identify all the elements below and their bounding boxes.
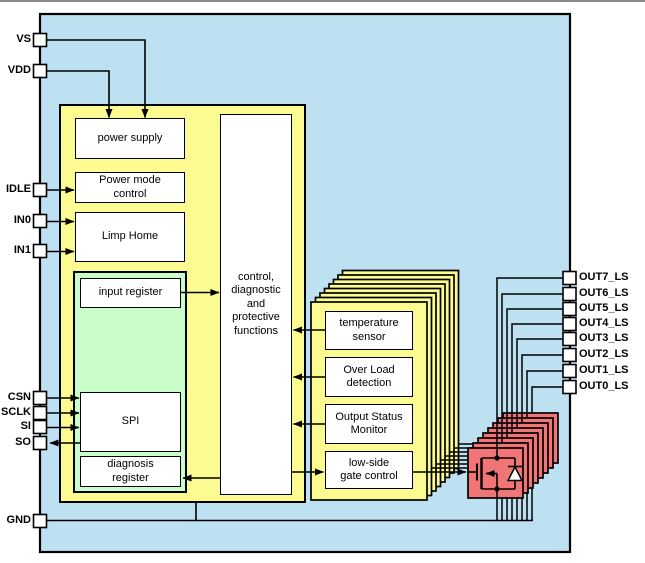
pin-out0_ls — [563, 381, 576, 394]
pin-label-out0_ls: OUT0_LS — [579, 379, 629, 394]
pin-label-csn: CSN — [0, 390, 31, 405]
pin-si — [34, 421, 47, 434]
drain-junction-dot — [494, 455, 499, 460]
power-mode-control-block: Power mode control — [75, 172, 185, 203]
source-junction-dot — [494, 486, 499, 491]
output-status-monitor-block: Output Status Monitor — [325, 404, 413, 444]
pin-label-out2_ls: OUT2_LS — [579, 347, 629, 362]
pin-out2_ls — [563, 349, 576, 362]
pin-out6_ls — [563, 288, 576, 301]
ic-block-diagram: power supply Power mode control Limp Hom… — [0, 0, 645, 563]
control-diagnostic-block: control, diagnostic and protective funct… — [220, 114, 292, 495]
pin-label-out7_ls: OUT7_LS — [579, 270, 629, 285]
pin-label-vdd: VDD — [0, 63, 31, 78]
pin-in1 — [34, 245, 47, 258]
pin-label-out5_ls: OUT5_LS — [579, 301, 629, 316]
pin-label-out4_ls: OUT4_LS — [579, 316, 629, 331]
pin-in0 — [34, 215, 47, 228]
pin-out4_ls — [563, 318, 576, 331]
spi-block: SPI — [80, 392, 181, 452]
pin-label-out3_ls: OUT3_LS — [579, 331, 629, 346]
lowside-gate-control-block: low-side gate control — [325, 451, 413, 489]
temperature-sensor-block: temperature sensor — [325, 311, 413, 350]
power-supply-block: power supply — [75, 118, 185, 159]
diagnosis-register-block: diagnosis register — [80, 456, 181, 487]
pin-csn — [34, 392, 47, 405]
pin-label-gnd: GND — [0, 513, 31, 528]
pin-sclk — [34, 407, 47, 420]
pin-out3_ls — [563, 333, 576, 346]
pin-so — [34, 437, 47, 450]
pin-label-out1_ls: OUT1_LS — [579, 363, 629, 378]
pin-label-si: SI — [0, 419, 31, 434]
pin-out1_ls — [563, 365, 576, 378]
pin-label-vs: VS — [0, 32, 31, 47]
pin-out7_ls — [563, 272, 576, 285]
pin-vs — [34, 34, 47, 47]
pin-label-sclk: SCLK — [0, 405, 31, 420]
pin-label-idle: IDLE — [0, 182, 31, 197]
pin-out5_ls — [563, 303, 576, 316]
pin-vdd — [34, 65, 47, 78]
pin-label-in0: IN0 — [0, 213, 31, 228]
input-register-block: input register — [80, 278, 181, 308]
pin-label-out6_ls: OUT6_LS — [579, 286, 629, 301]
pin-label-in1: IN1 — [0, 243, 31, 258]
pin-gnd — [34, 515, 47, 528]
pin-label-so: SO — [0, 435, 31, 450]
pin-idle — [34, 184, 47, 197]
limp-home-block: Limp Home — [75, 212, 185, 262]
overload-detection-block: Over Load detection — [325, 357, 413, 397]
